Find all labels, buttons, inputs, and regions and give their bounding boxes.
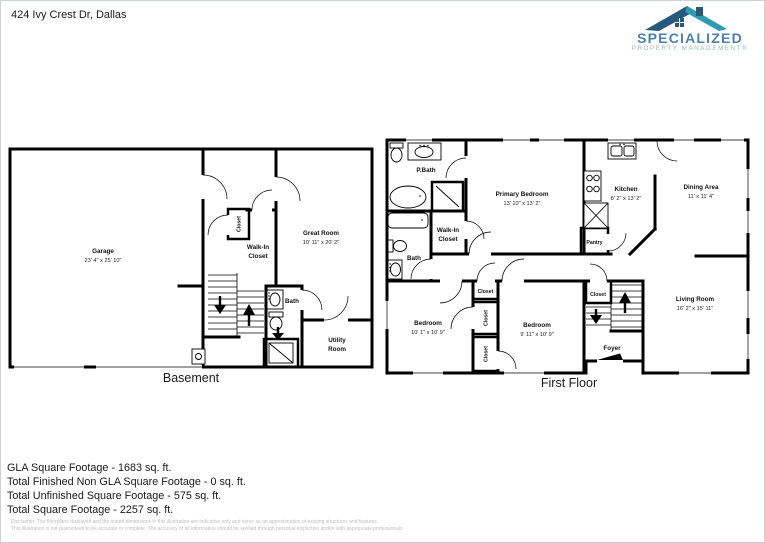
room-label-bedroom-left: Bedroom xyxy=(414,320,442,327)
company-logo: SPECIALIZED PROPERTY MANAGEMENT® xyxy=(624,4,756,53)
first-floor-fixtures xyxy=(388,143,636,360)
room-label-closet-top: Closet xyxy=(478,289,494,295)
square-footage-summary: GLA Square Footage - 1683 sq. ft. Total … xyxy=(7,461,246,517)
disclaimer-text: Disclaimer: The floorplans displayed and… xyxy=(11,519,404,532)
room-dims-great-room: 10' 11" x 20' 2" xyxy=(303,240,339,246)
room-label-walkin-1: Walk-In xyxy=(437,227,459,234)
first-floor-windows xyxy=(387,140,748,373)
room-label-walkin-1: Walk-In xyxy=(247,244,269,251)
summary-line-total: Total Square Footage - 2257 sq. ft. xyxy=(7,503,246,517)
first-floor-walls xyxy=(387,140,748,373)
room-label-garage: Garage xyxy=(92,248,114,255)
room-label-utility-2: Room xyxy=(328,346,346,353)
room-label-great-room: Great Room xyxy=(303,230,339,237)
room-dims-kitchen: 8' 2" x 13' 2" xyxy=(611,196,642,202)
room-dims-living: 16' 2" x 15' 11" xyxy=(677,306,713,312)
basement-walls xyxy=(10,149,372,367)
room-label-closet-stairs: Closet xyxy=(590,292,606,298)
room-label-walkin-2: Closet xyxy=(248,253,268,260)
room-dims-primary-bedroom: 13' 10" x 13' 2" xyxy=(504,201,541,207)
room-label-closet: Closet xyxy=(237,216,243,232)
disclaimer-line-1: Disclaimer: The floorplans displayed and… xyxy=(11,519,404,526)
room-label-bath: Bath xyxy=(407,255,421,262)
basement-floorplan: Garage 23' 4" x 25' 10" Great Room 10' 1… xyxy=(6,141,376,376)
summary-line-unfinished: Total Unfinished Square Footage - 575 sq… xyxy=(7,489,246,503)
room-label-living: Living Room xyxy=(676,296,715,303)
summary-line-gla: GLA Square Footage - 1683 sq. ft. xyxy=(7,461,246,475)
basement-stairs-up-arrow xyxy=(243,304,255,326)
room-dims-garage: 23' 4" x 25' 10" xyxy=(85,258,122,264)
floorplan-page: 424 Ivy Crest Dr, Dallas SPECIALIZED PRO… xyxy=(0,0,765,543)
house-roof-icon xyxy=(635,4,745,32)
room-label-walkin-2: Closet xyxy=(438,236,458,243)
room-dims-dining: 11' x 11' 4" xyxy=(688,194,714,200)
room-label-dining: Dining Area xyxy=(683,184,719,191)
room-dims-bedroom-left: 10' 1" x 10' 9" xyxy=(411,330,445,336)
first-floor-stair-treads xyxy=(586,281,643,331)
first-floor-door-openings xyxy=(387,140,748,373)
room-label-pbath: P.Bath xyxy=(416,167,435,174)
first-floor-floorplan: P.Bath Primary Bedroom 13' 10" x 13' 2" … xyxy=(384,133,754,378)
basement-caption: Basement xyxy=(6,371,376,385)
logo-tagline-text: PROPERTY MANAGEMENT® xyxy=(624,45,756,53)
first-floor-stairs-down-arrow xyxy=(590,309,602,324)
room-label-bedroom-mid: Bedroom xyxy=(523,322,551,329)
first-floor-stairs-up-arrow xyxy=(619,292,631,313)
room-label-kitchen: Kitchen xyxy=(614,186,637,193)
logo-brand-text: SPECIALIZED xyxy=(624,32,756,45)
room-label-pantry: Pantry xyxy=(586,240,602,246)
room-label-utility-1: Utility xyxy=(328,337,346,344)
room-label-foyer: Foyer xyxy=(603,345,621,352)
property-address: 424 Ivy Crest Dr, Dallas xyxy=(11,9,127,21)
room-dims-bedroom-mid: 9' 11" x 10' 9" xyxy=(520,332,553,338)
room-label-bath: Bath xyxy=(285,298,299,305)
room-label-primary-bedroom: Primary Bedroom xyxy=(496,191,549,198)
summary-line-non-gla: Total Finished Non GLA Square Footage - … xyxy=(7,475,246,489)
room-label-closet-mid: Closet xyxy=(484,310,490,326)
disclaimer-line-2: This illustration is not guaranteed to b… xyxy=(11,526,404,533)
first-floor-caption: First Floor xyxy=(384,376,754,390)
room-label-closet-bottom: Closet xyxy=(484,346,490,362)
